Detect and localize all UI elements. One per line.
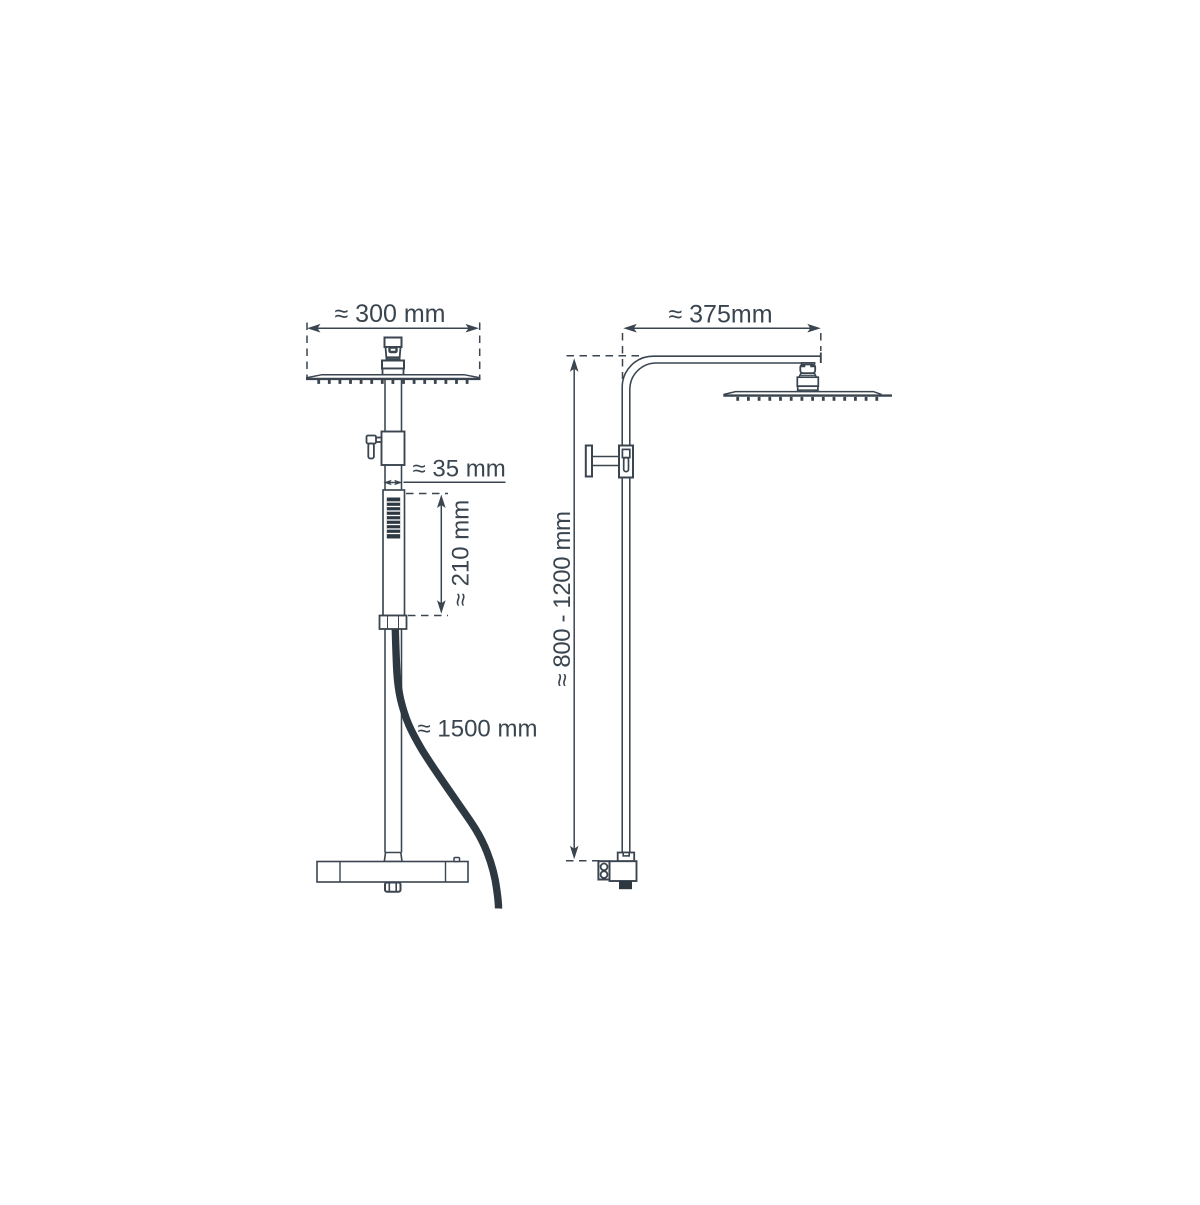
svg-text:≈ 1500 mm: ≈ 1500 mm <box>418 716 538 743</box>
svg-text:≈ 35 mm: ≈ 35 mm <box>413 456 506 483</box>
svg-text:≈ 800 - 1200 mm: ≈ 800 - 1200 mm <box>549 511 576 686</box>
svg-text:≈ 375mm: ≈ 375mm <box>668 301 772 329</box>
svg-text:≈ 210 mm: ≈ 210 mm <box>448 500 475 607</box>
svg-text:≈ 300 mm: ≈ 300 mm <box>335 300 446 328</box>
